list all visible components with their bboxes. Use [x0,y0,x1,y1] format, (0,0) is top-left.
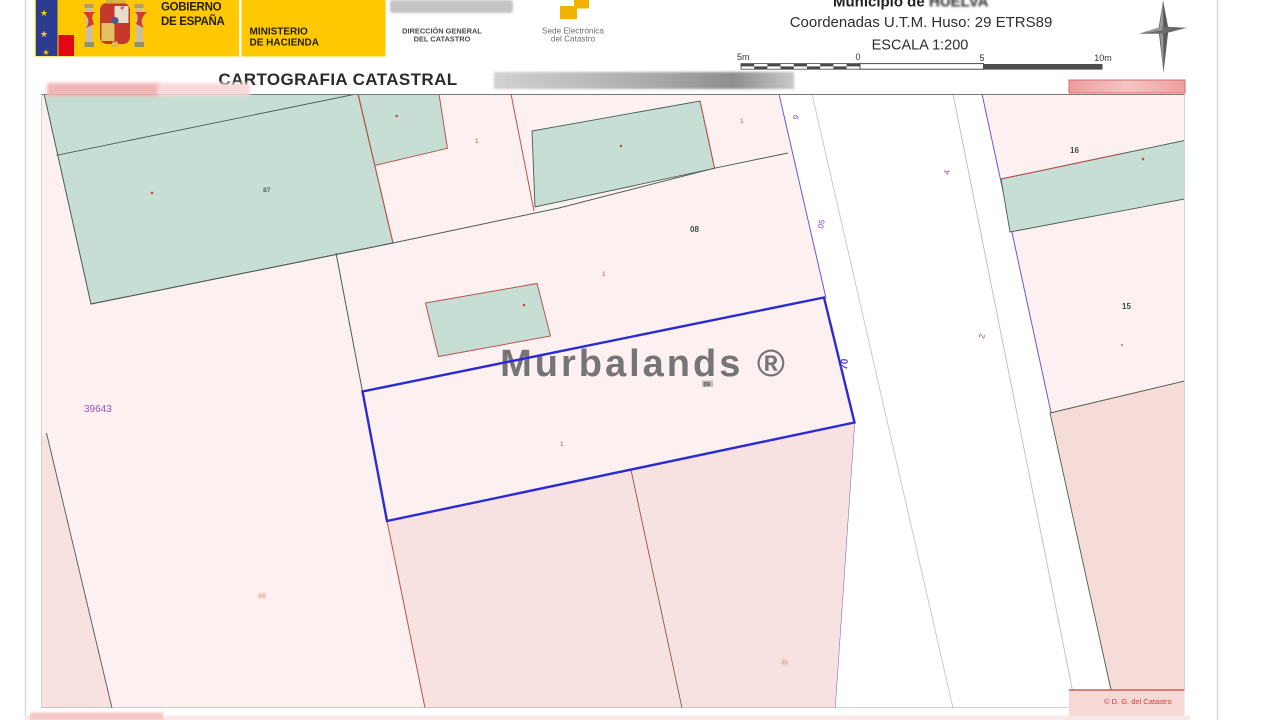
svg-text:5: 5 [979,53,984,63]
svg-text:Coordenadas U.T.M. Huso: 29 ET: Coordenadas U.T.M. Huso: 29 ETRS89 [790,14,1053,31]
svg-text:CARTOGRAFIA CATASTRAL: CARTOGRAFIA CATASTRAL [218,70,457,89]
svg-text:MINISTERIO: MINISTERIO [250,27,309,38]
svg-text:15: 15 [1122,302,1131,311]
svg-text:del Catastro: del Catastro [551,35,596,44]
svg-text:ESCALA 1:200: ESCALA 1:200 [872,38,969,54]
svg-text:★: ★ [42,48,49,57]
svg-text:DE HACIENDA: DE HACIENDA [250,38,319,49]
svg-text:44: 44 [258,593,266,600]
svg-text:★: ★ [40,8,48,18]
svg-text:HUELVA: HUELVA [929,0,989,11]
svg-text:★: ★ [40,29,48,39]
svg-text:5m: 5m [737,52,750,62]
svg-text:1: 1 [560,441,564,448]
svg-text:1: 1 [475,138,479,145]
svg-text:Murbalands ®: Murbalands ® [500,343,788,385]
svg-text:0: 0 [855,52,860,62]
svg-text:70: 70 [839,358,851,370]
svg-text:Fr: Fr [782,660,789,667]
svg-text:39643: 39643 [84,404,112,415]
svg-text:10m: 10m [1094,53,1112,63]
svg-text:1: 1 [602,271,606,278]
svg-text:DEL CATASTRO: DEL CATASTRO [414,35,471,44]
svg-text:1: 1 [740,118,744,125]
svg-text:16: 16 [1070,146,1079,155]
svg-text:87: 87 [263,187,271,194]
svg-text:© D. G. del Catastro: © D. G. del Catastro [1104,697,1172,706]
svg-text:Municipio de: Municipio de [833,0,925,11]
svg-text:GOBIERNO: GOBIERNO [161,2,222,14]
svg-text:08: 08 [690,225,699,234]
svg-text:DE ESPAÑA: DE ESPAÑA [161,15,225,28]
